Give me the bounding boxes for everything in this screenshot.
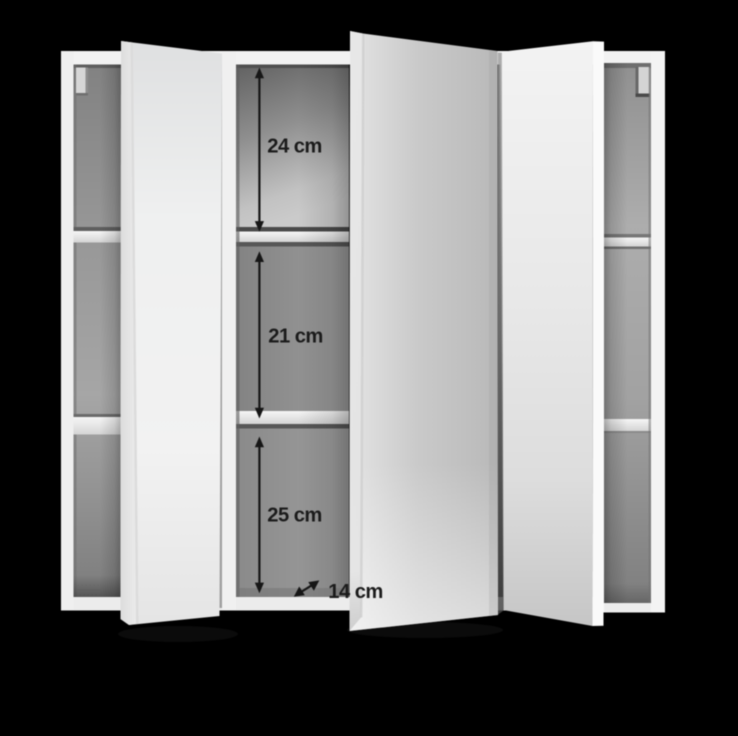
svg-text:14 cm: 14 cm — [328, 581, 383, 603]
svg-text:24 cm: 24 cm — [267, 136, 322, 158]
svg-text:25 cm: 25 cm — [267, 504, 322, 526]
svg-text:21 cm: 21 cm — [268, 325, 323, 347]
